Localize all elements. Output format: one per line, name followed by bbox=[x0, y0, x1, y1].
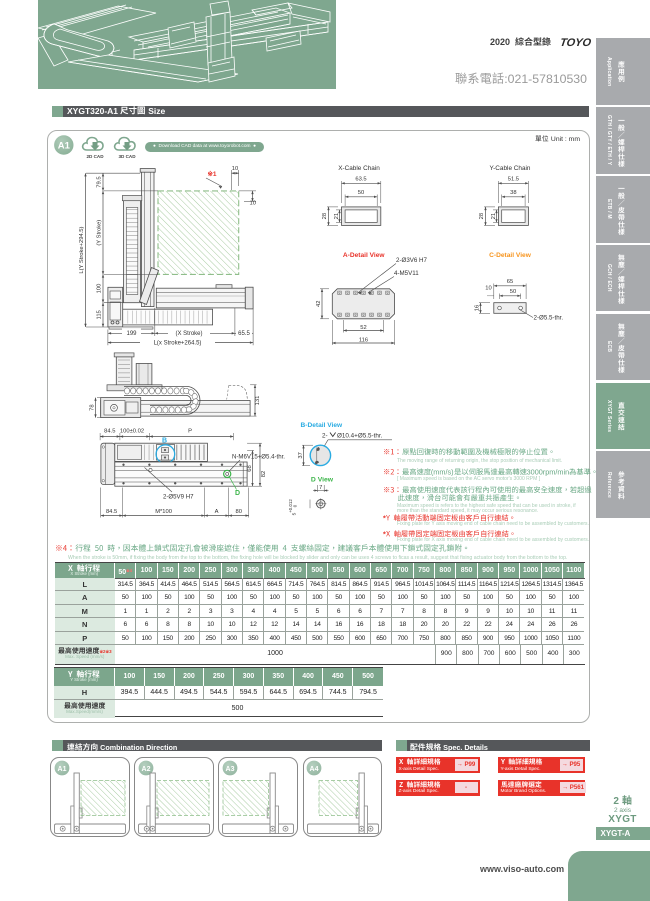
svg-text:M*100: M*100 bbox=[155, 509, 172, 515]
svg-text:7: 7 bbox=[319, 485, 322, 491]
svg-text:115: 115 bbox=[97, 310, 103, 319]
svg-text:10: 10 bbox=[250, 201, 256, 207]
svg-text:C-Detail View: C-Detail View bbox=[489, 252, 532, 259]
svg-text:D: D bbox=[235, 490, 240, 497]
svg-text:199: 199 bbox=[126, 331, 137, 337]
svg-text:2-Ø5.5-thr.: 2-Ø5.5-thr. bbox=[534, 315, 564, 322]
svg-text:42: 42 bbox=[316, 301, 322, 307]
svg-text:65.5: 65.5 bbox=[238, 331, 250, 337]
svg-text:4-M5V11: 4-M5V11 bbox=[394, 270, 419, 277]
svg-text:116: 116 bbox=[359, 337, 368, 343]
svg-text:84.5: 84.5 bbox=[104, 429, 115, 435]
svg-text:100: 100 bbox=[97, 284, 103, 294]
svg-text:38: 38 bbox=[510, 190, 516, 196]
svg-text:P: P bbox=[188, 429, 192, 435]
svg-text:28: 28 bbox=[322, 213, 328, 219]
svg-text:D View: D View bbox=[311, 477, 334, 484]
svg-text:2-Ø5V9 H7: 2-Ø5V9 H7 bbox=[163, 494, 194, 501]
svg-text:A-Detail View: A-Detail View bbox=[343, 252, 386, 259]
svg-text:82: 82 bbox=[261, 471, 267, 477]
svg-text:2-Ø3V6 H7: 2-Ø3V6 H7 bbox=[396, 257, 428, 264]
svg-text:65: 65 bbox=[507, 279, 513, 285]
svg-text:28: 28 bbox=[479, 213, 485, 219]
svg-text:21: 21 bbox=[491, 213, 497, 219]
svg-text:(X Stroke): (X Stroke) bbox=[175, 331, 202, 337]
svg-text:100±0.02: 100±0.02 bbox=[120, 429, 144, 435]
svg-text:A: A bbox=[215, 509, 219, 515]
svg-text:52: 52 bbox=[360, 325, 366, 331]
svg-text:78: 78 bbox=[90, 404, 96, 410]
svg-text:63.5: 63.5 bbox=[355, 177, 366, 183]
svg-text:50: 50 bbox=[358, 190, 364, 196]
svg-text:51.5: 51.5 bbox=[508, 177, 519, 183]
svg-text:16: 16 bbox=[475, 305, 481, 311]
svg-text:※1: ※1 bbox=[207, 170, 216, 178]
svg-text:(Y Stroke): (Y Stroke) bbox=[97, 220, 103, 246]
svg-text:N-M6V15+Ø5.4-thr.: N-M6V15+Ø5.4-thr. bbox=[232, 454, 285, 461]
svg-text:B-Detail View: B-Detail View bbox=[301, 422, 344, 429]
svg-text:L(x Stroke+264.5): L(x Stroke+264.5) bbox=[154, 340, 202, 346]
svg-text:131: 131 bbox=[255, 396, 261, 406]
svg-text:10: 10 bbox=[232, 166, 238, 172]
svg-text:84.5: 84.5 bbox=[106, 509, 117, 515]
svg-text:21: 21 bbox=[334, 213, 340, 219]
svg-text:2-: 2- bbox=[322, 433, 328, 440]
svg-text:68: 68 bbox=[247, 465, 253, 471]
svg-text:10: 10 bbox=[485, 286, 491, 292]
svg-text:B: B bbox=[162, 438, 167, 445]
svg-text:50: 50 bbox=[510, 289, 516, 295]
svg-text:79.5: 79.5 bbox=[97, 176, 103, 187]
svg-text:0: 0 bbox=[293, 504, 298, 507]
svg-text:80: 80 bbox=[235, 509, 241, 515]
svg-text:Y-Cable Chain: Y-Cable Chain bbox=[490, 165, 531, 172]
svg-text:X-Cable Chain: X-Cable Chain bbox=[338, 165, 380, 172]
svg-text:L(Y Stroke+294.5): L(Y Stroke+294.5) bbox=[79, 226, 85, 273]
svg-text:Ø10.4+Ø5.5-thr.: Ø10.4+Ø5.5-thr. bbox=[337, 433, 383, 440]
svg-text:37: 37 bbox=[298, 452, 304, 458]
